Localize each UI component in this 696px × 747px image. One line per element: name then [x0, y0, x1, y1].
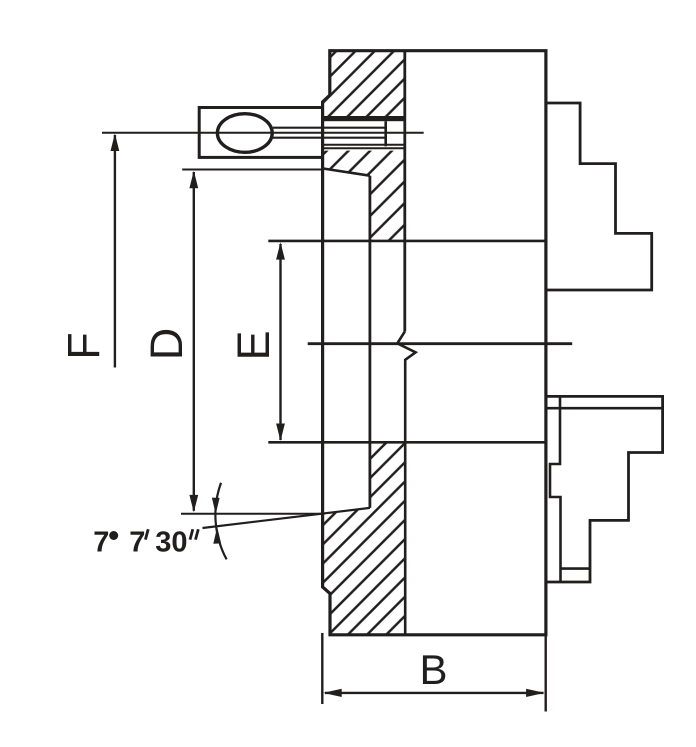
- svg-text:7: 7: [129, 526, 145, 558]
- svg-text:D: D: [141, 328, 192, 361]
- svg-text:30: 30: [155, 526, 187, 558]
- svg-text:B: B: [419, 646, 447, 693]
- svg-text:7: 7: [93, 526, 109, 558]
- svg-text:F: F: [58, 332, 109, 360]
- svg-text:E: E: [228, 330, 279, 360]
